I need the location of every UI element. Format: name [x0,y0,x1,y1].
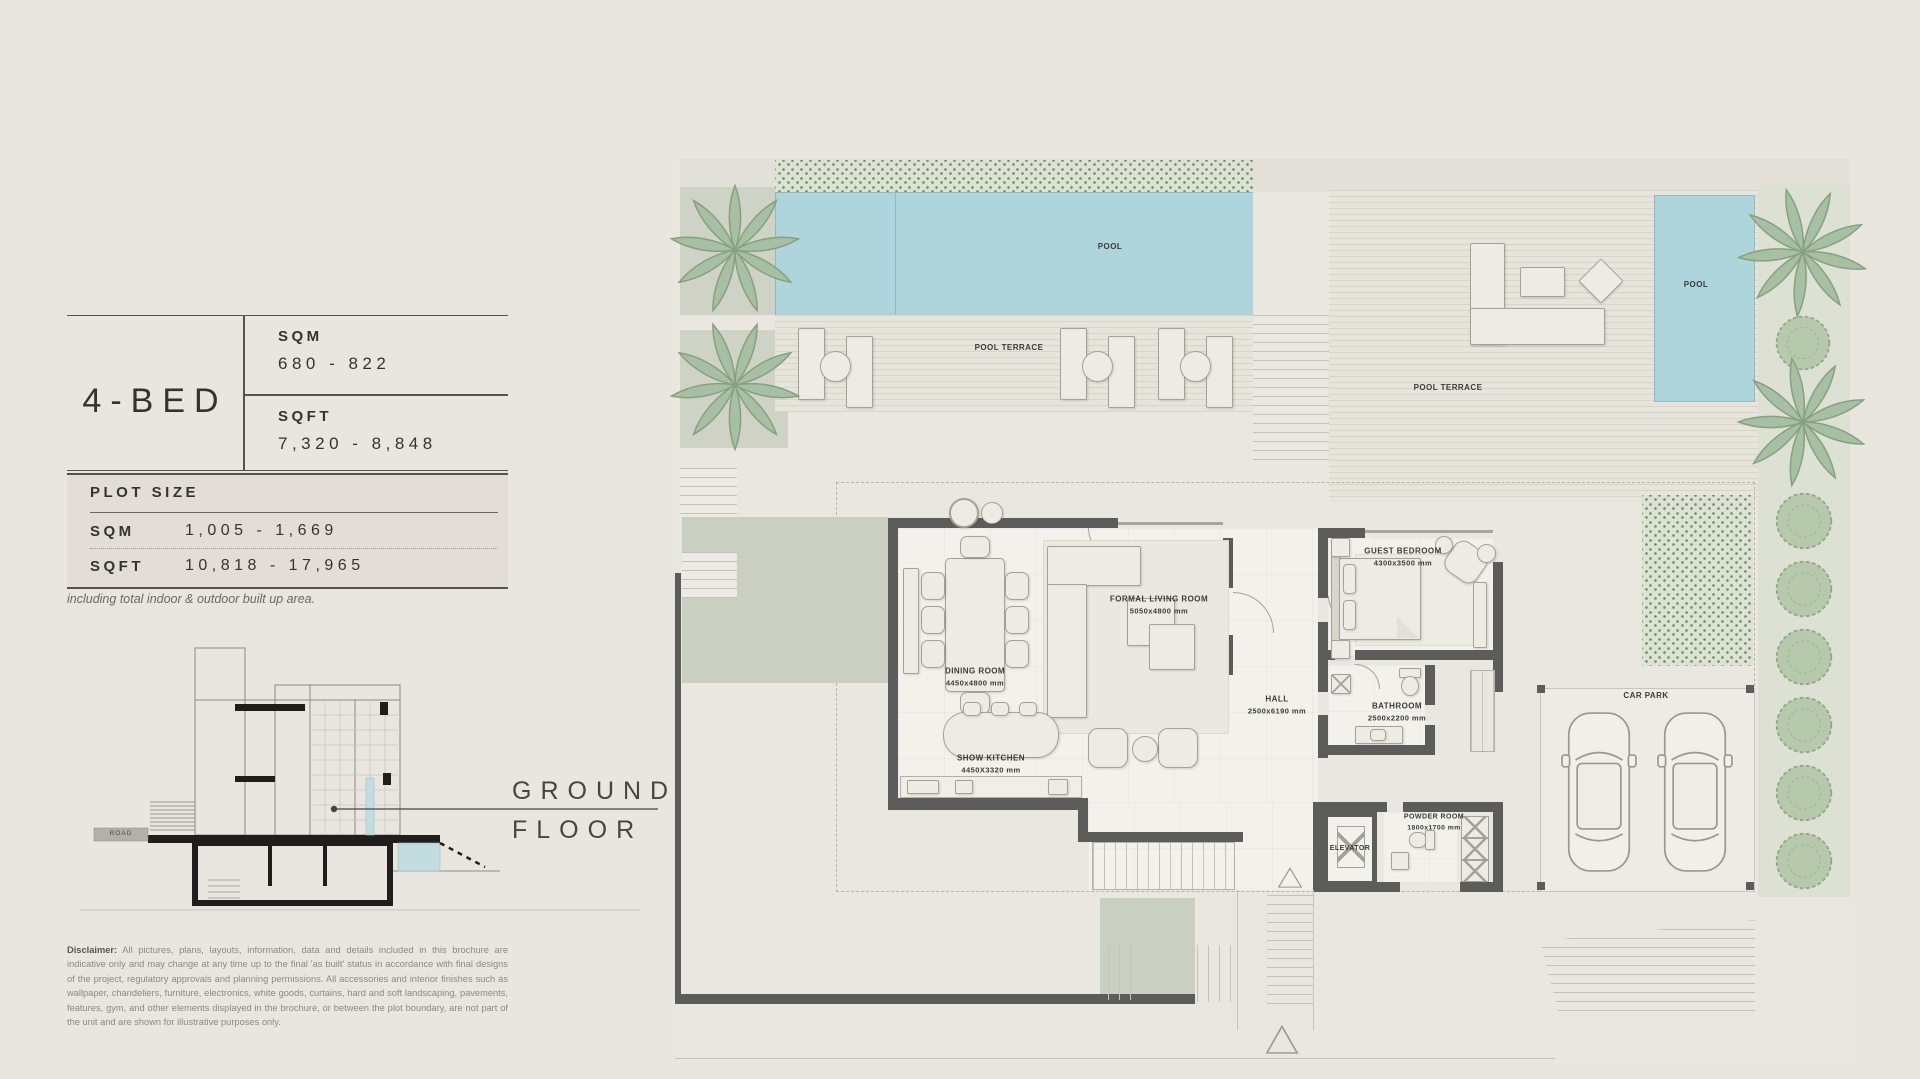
shower [1331,674,1351,694]
wardrobe [1470,670,1495,752]
lounge-chair [846,336,873,408]
pool-divider [895,192,896,315]
plot-size-note: including total indoor & outdoor built u… [67,592,315,606]
path-edge [1313,890,1314,1030]
terrace-steps [1253,315,1329,460]
coffee-table [1149,624,1195,670]
car-icon [1557,706,1641,878]
wall [1460,882,1503,892]
planter [981,502,1003,524]
site-wall [675,573,681,1000]
unit-title: 4-BED [67,382,243,421]
armchair [1088,728,1128,768]
hob [907,780,939,794]
corner-marker [1746,882,1754,890]
dining-chair [960,536,990,558]
room-label-pool-right: POOL [1684,279,1708,291]
plot-sqft-label: SQFT [90,558,144,575]
side-table [1082,351,1113,382]
plot-sqft-value: 10,818 - 17,965 [185,557,365,575]
room-label-pool-terrace-right: POOL TERRACE [1414,382,1483,394]
divider-vertical [243,316,245,470]
entry-steps [1108,945,1140,1000]
basin [1391,852,1409,870]
plot-size-dotted-rule [90,548,498,549]
bush-icon [1773,626,1835,688]
bench [1473,582,1487,648]
pool-main [775,192,1255,317]
bush-icon [1773,762,1835,824]
wall [888,518,898,810]
plot-size-heading: PLOT SIZE [90,484,199,501]
palm-tree-icon [660,175,810,325]
room-label-powder-room: POWDER ROOM1800x1700 mm [1404,813,1464,834]
side-table [1180,351,1211,382]
garden-steps [682,552,737,598]
road-label: ROAD [94,830,148,837]
pillow [1343,600,1356,630]
site-line [675,1058,1555,1059]
planting-strip [775,160,1253,192]
path-edge [1237,890,1238,1030]
sqft-label: SQFT [278,408,332,425]
appliance [1048,779,1068,795]
disclaimer-text: All pictures, plans, layouts, informatio… [67,945,508,1027]
garden-path [682,517,888,683]
floor-caption: GROUND FLOOR [512,777,662,845]
info-panel: 4-BED SQM 680 - 822 SQFT 7,320 - 8,848 [67,315,508,471]
wall [1425,725,1435,755]
car-icon [1653,706,1737,878]
dining-chair [1005,606,1029,634]
nightstand [1331,538,1350,557]
floor-plan: POOL POOL TERRACE POOL TERRACE POOL FORM… [655,130,1920,1079]
round-table [1132,736,1158,762]
plot-size-box: PLOT SIZE SQM 1,005 - 1,669 SQFT 10,818 … [67,473,508,589]
shelving [1461,816,1489,838]
bush-icon [1773,830,1835,892]
wall [1493,802,1503,892]
stool [963,702,981,716]
corner-marker [1746,685,1754,693]
floor-caption-line1: GROUND [512,777,662,806]
dining-chair [1005,640,1029,668]
sofa [1047,546,1141,586]
plot-sqm-label: SQM [90,523,135,540]
window [1118,522,1223,525]
dining-chair [921,606,945,634]
window [1365,530,1493,533]
section-drawing [80,630,660,920]
shelving [1461,860,1489,882]
shelving [1461,838,1489,860]
bush-icon [1773,694,1835,756]
brochure-page: 4-BED SQM 680 - 822 SQFT 7,320 - 8,848 P… [0,0,1920,1079]
corner-marker [1537,685,1545,693]
stool [1019,702,1037,716]
stool [991,702,1009,716]
room-label-dining: DINING ROOM4450x4800 mm [945,665,1005,688]
corner-marker [1537,882,1545,890]
room-label-show-kitchen: SHOW KITCHEN4450X3320 mm [957,752,1025,775]
wall [888,518,1118,528]
toilet-bowl [1401,676,1419,696]
entry-triangle-icon [1262,1023,1302,1057]
dining-chair [1005,572,1029,600]
outdoor-sofa [1470,308,1605,345]
room-label-bathroom: BATHROOM2500x2200 mm [1368,700,1426,723]
ceiling-fan-icon [1477,544,1496,563]
sink [955,780,973,794]
blanket-fold [1397,616,1419,638]
wall [1403,802,1503,812]
entry-steps [1197,945,1237,1002]
dining-chair [921,572,945,600]
planter [949,498,979,528]
nightstand [1331,640,1350,659]
room-label-formal-living: FORMAL LIVING ROOM5050x4800 mm [1110,593,1208,616]
room-label-car-park: CAR PARK [1623,690,1668,702]
disclaimer: Disclaimer: All pictures, plans, layouts… [67,943,508,1029]
lounge-chair [1108,336,1135,408]
sqm-value: 680 - 822 [278,354,390,374]
entry-steps [1267,895,1313,1007]
sqft-value: 7,320 - 8,848 [278,434,437,454]
sqm-label: SQM [278,328,323,345]
staircase [1092,842,1235,890]
wall [888,798,1088,810]
console-table [903,568,919,674]
disclaimer-label: Disclaimer: [67,945,117,955]
wall [1318,745,1435,755]
wall [1313,802,1323,892]
divider-horizontal [243,394,508,396]
wall [1355,650,1503,660]
sofa [1047,584,1087,718]
basin [1370,729,1386,741]
room-label-pool-top: POOL [1098,241,1122,253]
wall [1425,665,1435,705]
wall [1078,832,1243,842]
bush-icon [1773,558,1835,620]
coffee-table [1520,267,1565,297]
kitchen-island [943,712,1059,758]
armchair [1158,728,1198,768]
wall [1313,802,1387,812]
lounge-chair [1206,336,1233,408]
floor-caption-line2: FLOOR [512,816,662,845]
room-label-elevator: ELEVATOR [1330,844,1371,855]
dining-chair [921,640,945,668]
room-label-guest-bedroom: GUEST BEDROOM4300x3500 mm [1364,545,1441,568]
room-label-hall: HALL2500x6190 mm [1248,693,1306,716]
plot-sqm-value: 1,005 - 1,669 [185,522,338,540]
wall [1318,528,1328,598]
direction-triangle-icon [1275,866,1305,890]
room-label-pool-terrace-top: POOL TERRACE [975,342,1044,354]
pillow [1343,564,1356,594]
plot-size-rule [90,512,498,513]
garden-steps [680,468,737,517]
